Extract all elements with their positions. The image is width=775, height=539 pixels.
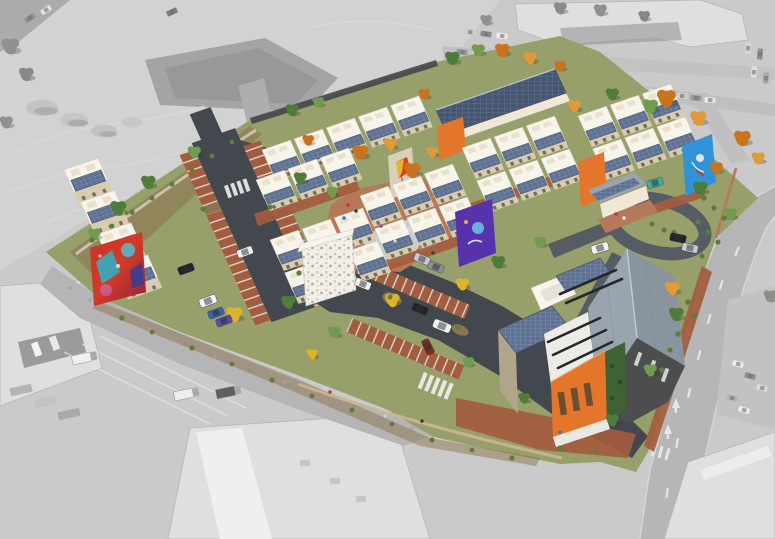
aerial-rendering-screenshot	[0, 0, 775, 539]
green-vine-wall	[605, 342, 627, 420]
aerial-rendering	[0, 0, 775, 539]
